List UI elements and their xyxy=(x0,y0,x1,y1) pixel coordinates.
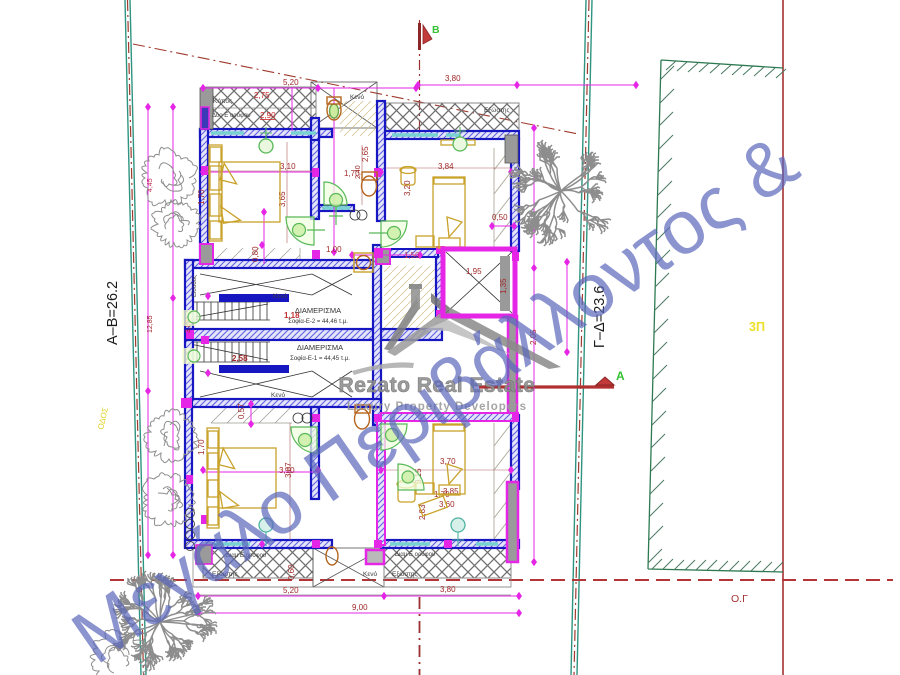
svg-text:3,10: 3,10 xyxy=(280,162,296,171)
svg-text:Δύο Ε ορόφου: Δύο Ε ορόφου xyxy=(212,112,251,119)
svg-text:3,80: 3,80 xyxy=(440,585,456,594)
svg-text:Διαμ Ε ορόφου: Διαμ Ε ορόφου xyxy=(395,551,435,558)
svg-text:0,80: 0,80 xyxy=(251,246,260,262)
svg-text:0,50: 0,50 xyxy=(492,213,508,222)
svg-text:Κήπος: Κήπος xyxy=(213,98,232,105)
svg-text:Είσοδος: Είσοδος xyxy=(192,275,198,297)
svg-text:5,20: 5,20 xyxy=(283,78,299,87)
svg-text:2,75: 2,75 xyxy=(254,91,270,100)
svg-text:0,60: 0,60 xyxy=(287,564,296,580)
svg-text:1,00: 1,00 xyxy=(326,245,342,254)
svg-text:0,57: 0,57 xyxy=(237,403,246,419)
svg-text:1,35: 1,35 xyxy=(499,278,508,294)
svg-text:3Π: 3Π xyxy=(749,320,765,334)
svg-text:1,50: 1,50 xyxy=(404,251,420,260)
svg-text:ΔΙΑΜΕΡΙΣΜΑ: ΔΙΑΜΕΡΙΣΜΑ xyxy=(295,306,341,315)
svg-text:Ο.Γ: Ο.Γ xyxy=(731,593,748,605)
svg-text:Κενό: Κενό xyxy=(273,292,287,300)
svg-text:Σοφία-Ε-1 = 44,45 τ.μ.: Σοφία-Ε-1 = 44,45 τ.μ. xyxy=(290,356,350,362)
svg-text:A–B=26.2: A–B=26.2 xyxy=(105,281,121,345)
svg-text:Σοφία-Ε-2 = 44,46 τ.μ.: Σοφία-Ε-2 = 44,46 τ.μ. xyxy=(288,319,348,325)
svg-text:2,40: 2,40 xyxy=(355,165,362,179)
svg-text:2,58: 2,58 xyxy=(232,354,248,363)
svg-text:1,70: 1,70 xyxy=(197,439,206,455)
svg-text:1,95: 1,95 xyxy=(466,267,482,276)
svg-text:4,45: 4,45 xyxy=(147,178,154,192)
svg-text:Κενό: Κενό xyxy=(271,391,285,399)
svg-text:Κενό: Κενό xyxy=(363,570,377,578)
svg-text:ΔΙΑΜΕΡΙΣΜΑ: ΔΙΑΜΕΡΙΣΜΑ xyxy=(297,343,343,352)
svg-text:Εξώστης: Εξώστης xyxy=(484,106,510,114)
svg-text:3,20: 3,20 xyxy=(403,180,412,196)
svg-text:3,84: 3,84 xyxy=(438,162,454,171)
svg-text:9,00: 9,00 xyxy=(352,603,368,612)
svg-text:12,85: 12,85 xyxy=(147,315,154,333)
svg-text:Εξώστης: Εξώστης xyxy=(392,570,418,578)
svg-text:B: B xyxy=(432,24,440,36)
svg-text:Κενό: Κενό xyxy=(350,93,364,101)
svg-text:2,65: 2,65 xyxy=(361,146,370,162)
svg-text:1,70: 1,70 xyxy=(197,189,206,205)
svg-text:2,90: 2,90 xyxy=(260,111,276,120)
svg-text:5,20: 5,20 xyxy=(283,586,299,595)
svg-text:A: A xyxy=(616,369,625,383)
svg-text:3,80: 3,80 xyxy=(445,74,461,83)
